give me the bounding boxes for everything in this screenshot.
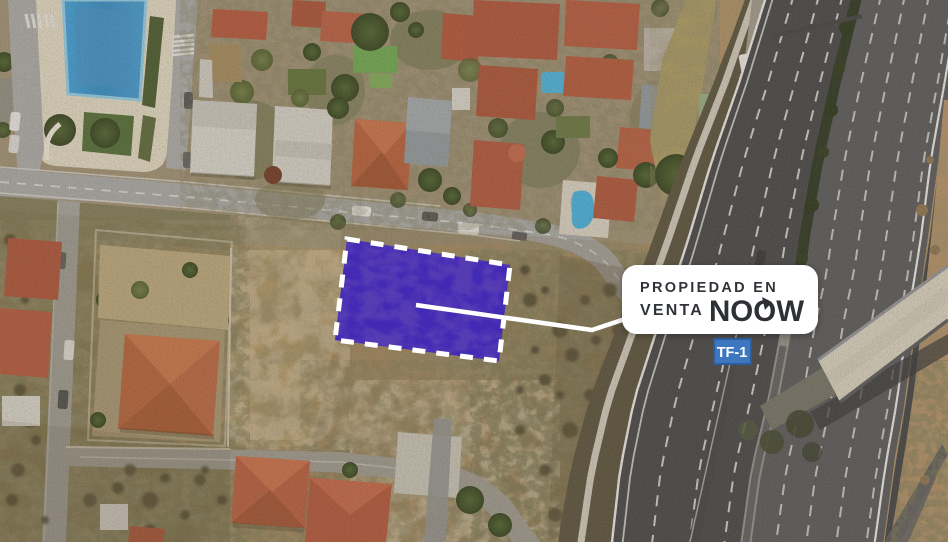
svg-text:PROPIEDAD EN: PROPIEDAD EN xyxy=(640,280,778,296)
svg-text:TF-1: TF-1 xyxy=(717,345,748,361)
svg-text:NOOW: NOOW xyxy=(709,295,804,328)
svg-text:VENTA: VENTA xyxy=(640,302,704,319)
